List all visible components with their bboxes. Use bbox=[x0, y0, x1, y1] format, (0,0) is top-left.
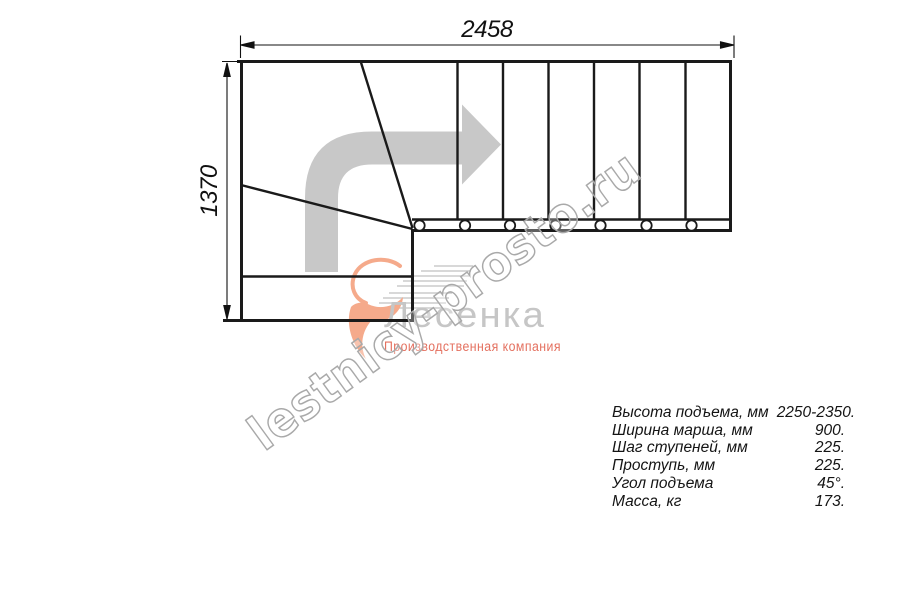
baluster-circle bbox=[686, 220, 696, 230]
dimension-height-label: 1370 bbox=[196, 164, 223, 217]
spec-value: 45°. bbox=[817, 475, 845, 493]
dimension-arrowhead bbox=[721, 42, 735, 48]
spec-label: Ширина марша, мм bbox=[612, 422, 753, 440]
spec-value: 2250-2350. bbox=[777, 404, 855, 422]
spec-label: Высота подъема, мм bbox=[612, 404, 769, 422]
spec-row: Ширина марша, мм 900. bbox=[612, 422, 845, 440]
spec-row: Масса, кг 173. bbox=[612, 493, 845, 511]
spec-row: Проступь, мм 225. bbox=[612, 457, 845, 475]
spec-value: 900. bbox=[815, 422, 845, 440]
spec-value: 173. bbox=[815, 493, 845, 511]
spec-row: Высота подъема, мм 2250-2350. bbox=[612, 404, 845, 422]
site-watermark-text: lestnicy-prosto.ru bbox=[238, 140, 651, 462]
spec-label: Масса, кг bbox=[612, 493, 681, 511]
baluster-circle bbox=[641, 220, 651, 230]
spec-value: 225. bbox=[815, 457, 845, 475]
spec-label: Проступь, мм bbox=[612, 457, 715, 475]
baluster-circle bbox=[414, 220, 424, 230]
dimension-left bbox=[222, 62, 240, 320]
spec-value: 225. bbox=[815, 439, 845, 457]
baluster-circle bbox=[460, 220, 470, 230]
dimension-arrowhead bbox=[224, 63, 230, 77]
spec-row: Угол подъема 45°. bbox=[612, 475, 845, 493]
spec-table: Высота подъема, мм 2250-2350. Ширина мар… bbox=[612, 404, 845, 510]
spec-label: Угол подъема bbox=[612, 475, 713, 493]
dimension-arrowhead bbox=[241, 42, 255, 48]
spec-row: Шаг ступеней, мм 225. bbox=[612, 439, 845, 457]
dimension-arrowhead bbox=[224, 306, 230, 320]
dimension-width-label: 2458 bbox=[460, 16, 514, 43]
spec-label: Шаг ступеней, мм bbox=[612, 439, 748, 457]
